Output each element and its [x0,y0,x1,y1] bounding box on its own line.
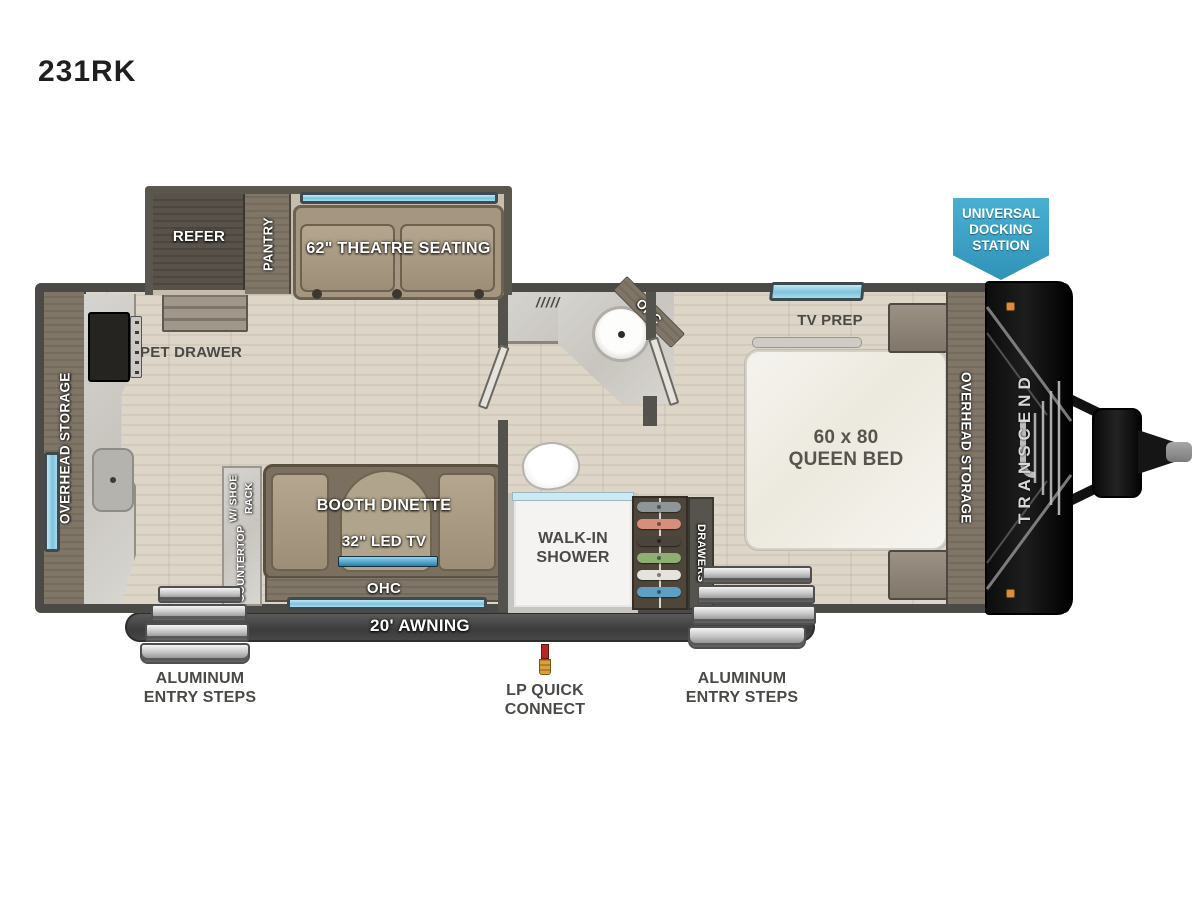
bath-wall-left-lower [498,420,508,612]
steps-right-line1: ALUMINUM [698,670,787,687]
entry-steps-left-label: ALUMINUMENTRY STEPS [118,670,282,708]
nightstand-top [888,303,948,353]
theatre-cupholder-right [474,289,484,299]
hitch-ball-mount [1166,442,1192,462]
tv-prep-label: TV PREP [760,312,900,330]
bath-wall-left-upper [498,292,508,348]
entry-step-left-4 [140,643,250,664]
kitchen-faucet [110,477,116,483]
theatre-cupholder-center [392,289,402,299]
lp-quick-connect-label: LP QUICKCONNECT [465,682,625,720]
bath-wall-right-upper [646,292,656,340]
entry-step-left-3 [145,623,249,642]
theatre-seat-left [300,224,395,292]
booth-bench-right-cushion [438,473,496,571]
hanger-white [637,570,681,580]
stove-cooktop [88,312,130,382]
steps-left-line1: ALUMINUM [156,670,245,687]
hanger-dark [637,536,681,546]
bath-vent-marks: ///// [536,294,560,311]
walk-in-shower-label: WALK-INSHOWER [508,530,638,568]
lp-line2: CONNECT [505,701,586,718]
kitchen-window [44,452,60,552]
countertop-line2: W/ SHOE RACK [226,470,258,526]
entry-step-right-1 [702,566,812,584]
wardrobe-hangers [632,496,688,610]
brand-logo: TRANSCEND [1012,310,1038,586]
bedroom-overhead-storage-label: OVERHEAD STORAGE [949,300,983,596]
steps-right-line2: ENTRY STEPS [686,689,798,706]
dinette-ohc-label: OHC [265,580,503,597]
shower-glass-door [512,492,634,501]
lp-quick-connect-valve [541,644,549,659]
theatre-seat-right [400,224,495,292]
booth-bench-left-cushion [271,473,329,571]
theatre-seating-label: 62" THEATRE SEATING [293,240,504,258]
dinette-window [287,597,487,610]
entry-step-left-2 [151,604,247,622]
pet-drawer-label: PET DRAWER [140,344,270,362]
entry-step-right-2 [697,585,815,604]
theatre-cupholder-left [312,289,322,299]
hanger-green [637,553,681,563]
hanger-blue [637,587,681,597]
bath-wall-pillar [643,396,657,426]
marker-light-bottom [1006,589,1015,598]
led-tv-label: 32" LED TV [266,533,502,550]
bedroom-window [769,282,865,301]
universal-docking-station-badge: UNIVERSAL DOCKING STATION [953,198,1049,280]
entry-step-right-4 [688,626,806,649]
hanger-salmon [637,519,681,529]
lp-quick-connect-nozzle [539,659,551,675]
shower-line1: WALK-IN [538,530,608,547]
booth-dinette-label: BOOTH DINETTE [266,497,502,515]
nightstand-bottom [888,550,948,600]
floorplan-model-title: 231RK [38,55,136,89]
entry-steps-right-label: ALUMINUMENTRY STEPS [660,670,824,708]
bed-size: 60 x 80 [814,427,879,448]
countertop-shoe-rack-label: COUNTERTOPW/ SHOE RACK [223,470,261,602]
bath-sink-drain [618,331,625,338]
propane-tank-cover [1092,408,1142,498]
badge-line2: DOCKING [969,222,1033,237]
steps-left-line2: ENTRY STEPS [144,689,256,706]
badge-line3: STATION [972,238,1029,253]
pantry-label: PANTRY [247,196,289,292]
bed-type: QUEEN BED [789,449,904,470]
queen-bed-label: 60 x 80QUEEN BED [745,427,947,472]
shower-line2: SHOWER [536,549,609,566]
badge-line1: UNIVERSAL [962,206,1040,221]
awning-label: 20' AWNING [330,616,510,636]
hanger-gray [637,502,681,512]
refer-label: REFER [153,228,245,245]
lp-line1: LP QUICK [506,682,584,699]
bedroom-credenza [752,337,862,348]
entry-step-right-3 [692,605,816,625]
led-tv [338,556,438,567]
entry-step-left-1 [158,586,242,603]
slideout-window [300,192,498,204]
